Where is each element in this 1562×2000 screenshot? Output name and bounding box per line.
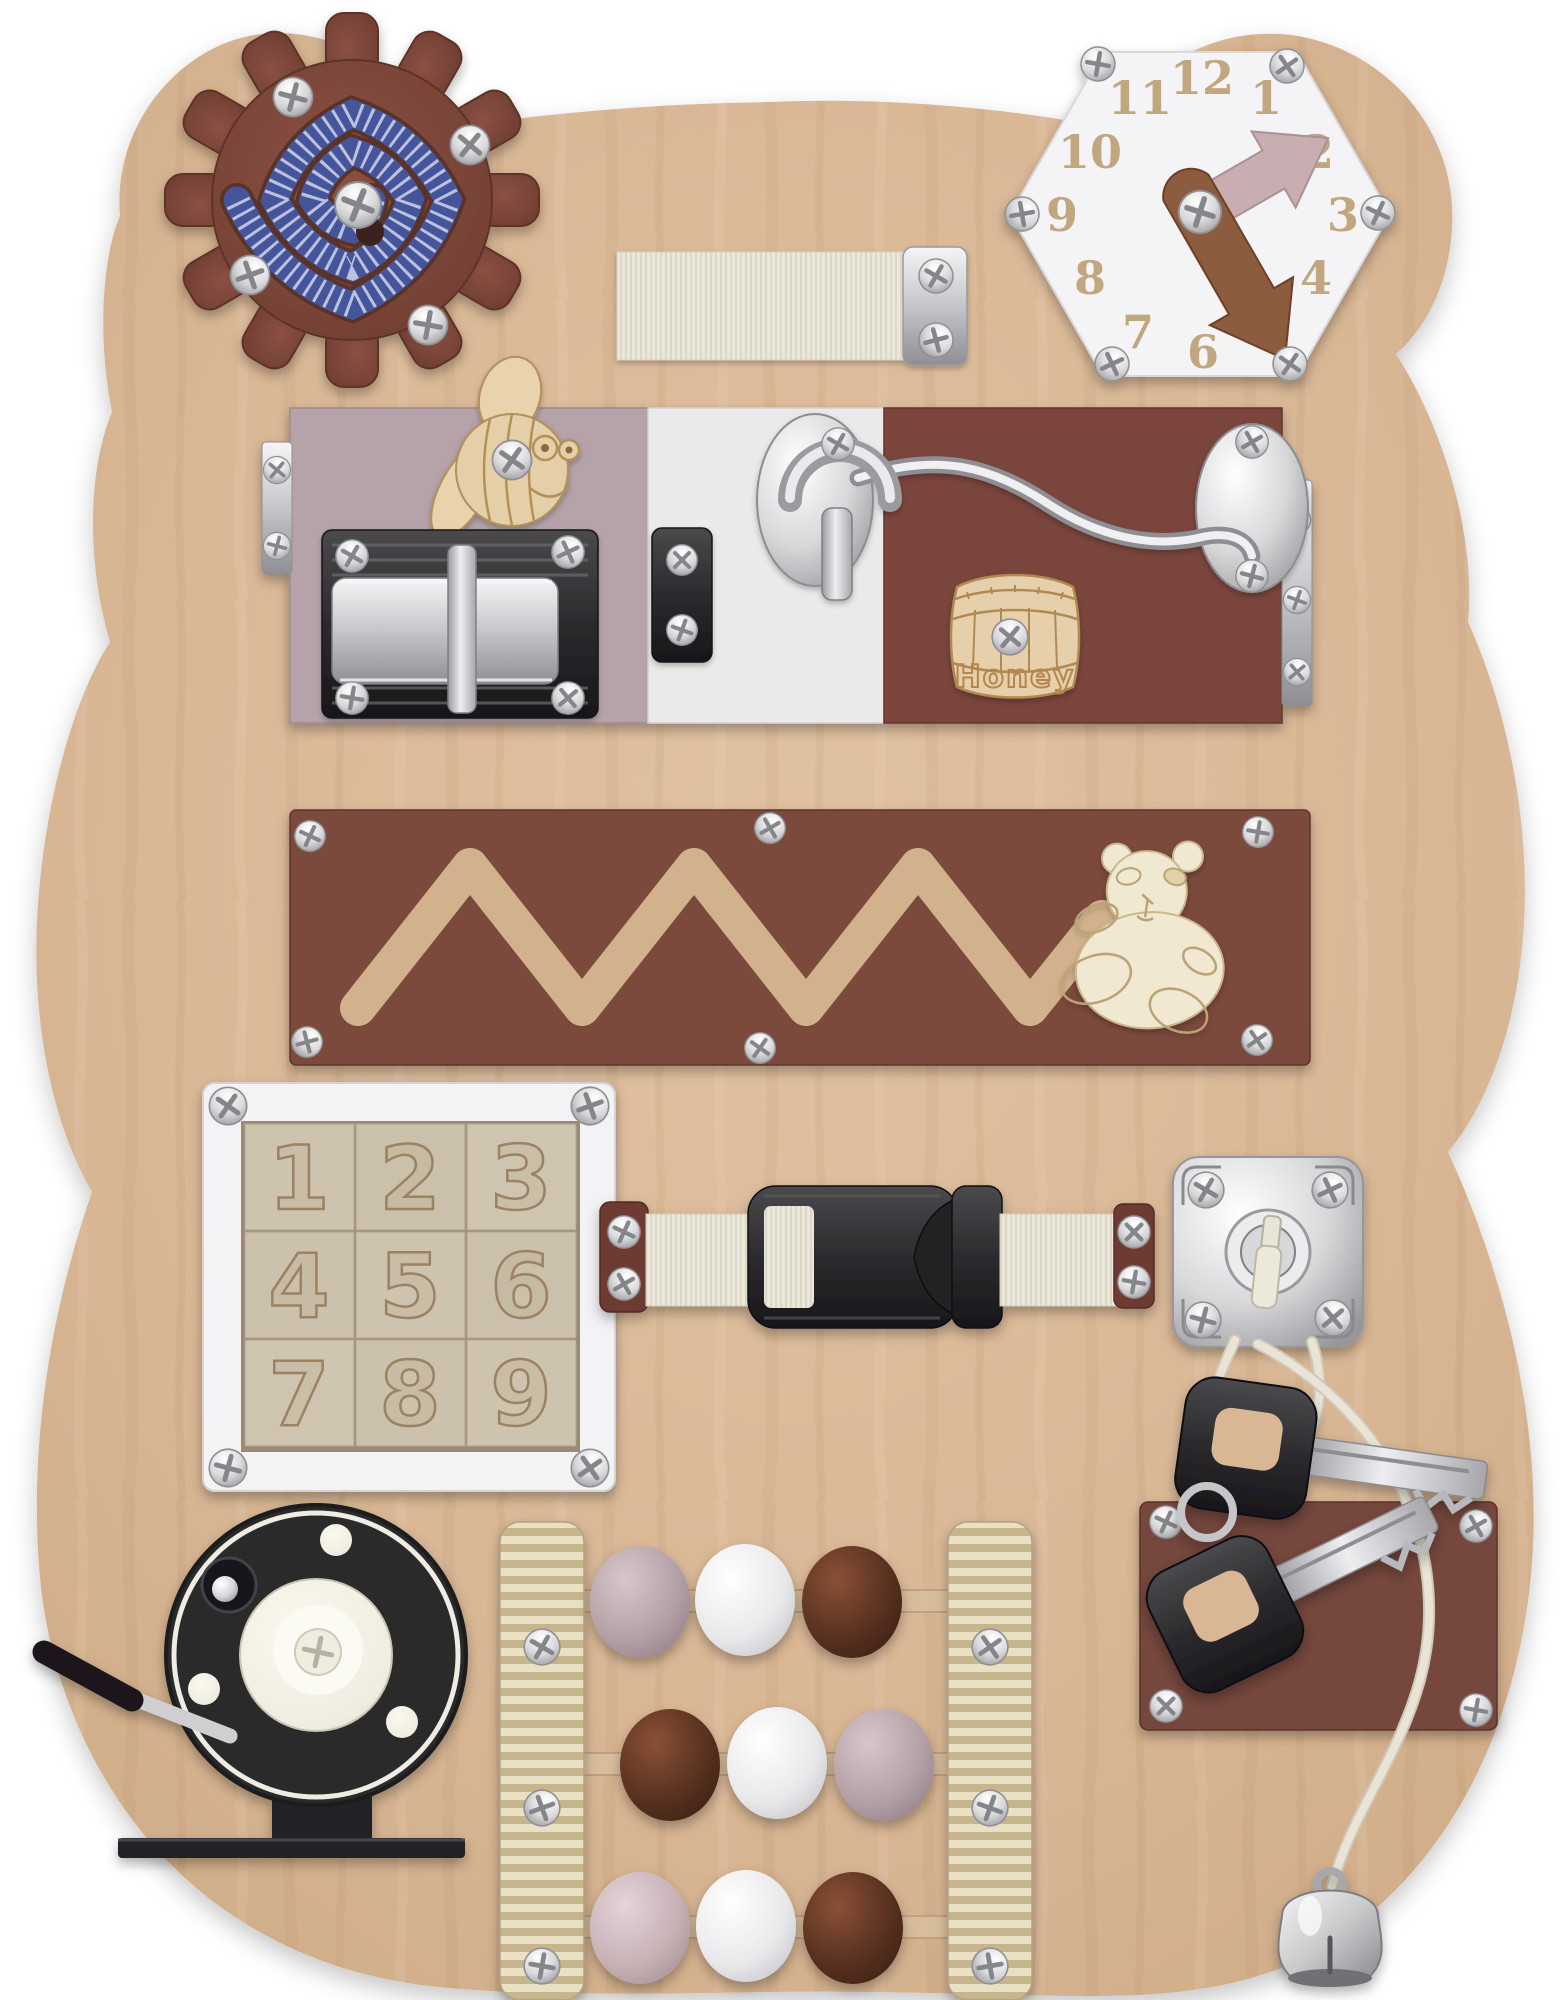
puzzle-tile-9: 9: [490, 1343, 551, 1446]
honey-label: Honey: [955, 659, 1076, 695]
reel-ball: [386, 1706, 418, 1738]
abacus-rail-left: [500, 1522, 584, 2000]
honey-barrel: Honey: [951, 575, 1079, 698]
clock-number-6: 6: [1187, 325, 1219, 379]
clock-number-11: 11: [1108, 71, 1172, 125]
busy-board-product-photo: 12 1 2 3 4 5 6 7 8 9 10 11: [0, 0, 1562, 2000]
abacus-rail-right: [948, 1522, 1032, 2000]
clock-number-3: 3: [1327, 188, 1359, 242]
busy-board-scene: 12 1 2 3 4 5 6 7 8 9 10 11: [0, 0, 1562, 2000]
puzzle-tile-5: 5: [379, 1235, 440, 1338]
bead: [802, 1546, 902, 1658]
clock-number-10: 10: [1058, 125, 1122, 179]
bead: [620, 1709, 720, 1821]
clock-number-7: 7: [1122, 305, 1154, 359]
strap-webbing-right: [1000, 1214, 1116, 1306]
bead: [695, 1544, 795, 1656]
abacus-beads: [590, 1544, 934, 1984]
bead: [696, 1870, 796, 1982]
number-puzzle: 1 2 3 4 5 6 7 8 9: [202, 1080, 616, 1494]
clock-number-9: 9: [1046, 188, 1078, 242]
bead: [803, 1872, 903, 1984]
hook-plate-left: [757, 414, 873, 586]
bolt-handle: [448, 545, 476, 713]
puzzle-tile-1: 1: [268, 1127, 329, 1230]
reel-ball: [320, 1524, 352, 1556]
strap-webbing-left: [646, 1214, 750, 1306]
clock-number-4: 4: [1300, 251, 1332, 305]
reel-ball: [188, 1673, 220, 1705]
bead: [590, 1872, 690, 1984]
puzzle-tile-3: 3: [490, 1127, 551, 1230]
puzzle-tile-7: 7: [268, 1343, 329, 1446]
reel-clapper-ball: [212, 1576, 238, 1602]
bolt-cylinder: [332, 578, 558, 684]
clock-number-8: 8: [1074, 251, 1106, 305]
bead: [834, 1709, 934, 1821]
puzzle-tile-2: 2: [379, 1127, 440, 1230]
elastic-ribbon: [617, 247, 967, 365]
bead: [727, 1707, 827, 1819]
clock-number-12: 12: [1170, 51, 1234, 105]
puzzle-tile-4: 4: [268, 1235, 329, 1338]
puzzle-tile-8: 8: [379, 1343, 440, 1446]
puzzle-tile-6: 6: [490, 1235, 551, 1338]
puzzle-tiles: 1 2 3 4 5 6 7 8 9: [245, 1124, 576, 1446]
bead: [590, 1546, 690, 1658]
cabinet-lock: [1173, 1157, 1363, 1347]
abacus: [500, 1522, 1032, 2000]
